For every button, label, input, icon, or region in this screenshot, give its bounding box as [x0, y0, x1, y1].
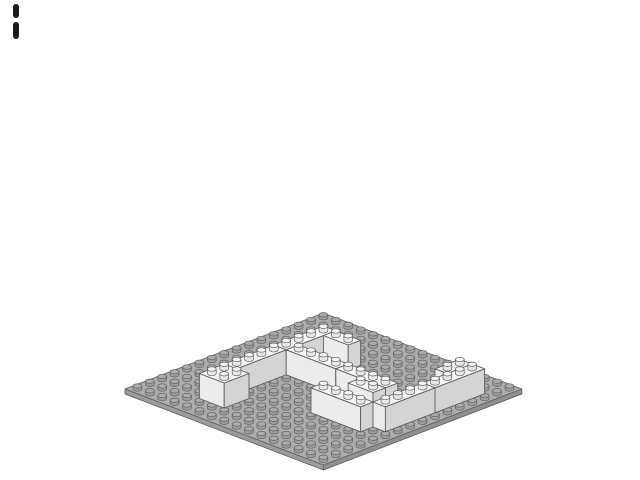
- render-page: [0, 0, 640, 480]
- lego-model-render: [0, 0, 640, 480]
